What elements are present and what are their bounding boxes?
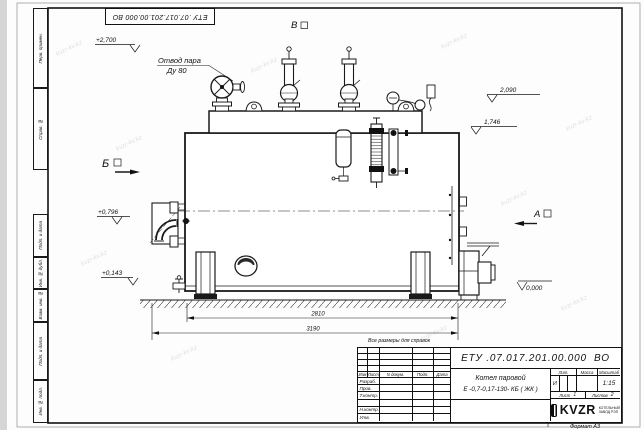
dimension-3190: 3190 — [152, 303, 458, 340]
title-block: Изм Лист N докум. Подп. Дата Разраб. Про… — [357, 347, 622, 423]
svg-text:+0,143: +0,143 — [102, 270, 122, 277]
sheet-cell: Лист1 — [551, 392, 586, 398]
svg-text:В: В — [291, 20, 298, 31]
support-leg-right — [409, 252, 432, 299]
col-list: Лист — [368, 372, 380, 377]
dim-inner-text: 2810 — [310, 312, 325, 318]
margin-box-podp-data-2: Подп. и дата — [33, 322, 48, 380]
margin-box-inv-dubl: Инв. № дубл. — [33, 257, 48, 289]
doc-number: ЕТУ .07.017.201.00.000 ВО — [451, 348, 620, 369]
svg-text:А: А — [533, 209, 540, 220]
kvzr-logo-text: KVZR — [560, 403, 596, 417]
drain-valve — [173, 276, 185, 293]
role-tkontr: Т.контр. — [358, 392, 380, 398]
elevation-mark-top-left: +2,700 — [95, 37, 140, 52]
role-utv: Утв. — [358, 414, 380, 421]
ground-hatch — [140, 300, 506, 308]
svg-text:+0,796: +0,796 — [98, 209, 118, 216]
reference-note: Все размеры для справок — [368, 338, 431, 344]
scale-header: Масштаб — [598, 369, 620, 375]
corner-doc-number: ЕТУ .07.017.201.00.000 ВО — [112, 13, 207, 20]
margin-box-inv-podl: Инв. № подл. — [33, 380, 48, 423]
steam-outlet-size-label: Ду 80 — [166, 66, 187, 75]
product-name-line1: Котел паровой — [475, 373, 525, 384]
sheets-cell: Листов2 — [586, 392, 621, 398]
manhole — [235, 256, 257, 276]
margin-box-perv-primen: Перв. примен. — [33, 8, 48, 88]
view-label-a: А — [514, 209, 551, 226]
steam-outlet-label: Отвод пара — [158, 56, 201, 65]
col-podp: Подп. — [413, 372, 435, 377]
elevation-mark-right-lower: 1,746 — [471, 119, 517, 134]
product-name: Котел паровой Е -0,7-0,17-130- КБ ( ЖК ) — [451, 369, 551, 400]
dim-overall-text: 3190 — [306, 327, 320, 333]
title-block-right-part: Лит. Масса Масштаб И 1:15 Лист1 Листов2 … — [551, 369, 620, 421]
elevation-mark-left-lower: +0,143 — [101, 270, 138, 285]
col-izm: Изм — [358, 372, 368, 377]
left-margin-column: Перв. примен. Справ. № Подп. и дата Инв.… — [33, 8, 48, 423]
scale-value: 1:15 — [598, 376, 620, 391]
role-prov: Пров. — [358, 385, 380, 391]
thermometer-plate — [427, 85, 435, 111]
support-leg-left — [194, 252, 217, 299]
svg-text:+2,700: +2,700 — [96, 37, 116, 44]
svg-text:1,746: 1,746 — [484, 119, 501, 126]
view-label-b: Б — [102, 158, 140, 175]
margin-box-sprav-n: Справ. № — [33, 88, 48, 170]
svg-text:2,090: 2,090 — [499, 87, 517, 94]
elevation-mark-left-upper: +0,796 — [97, 209, 130, 224]
svg-text:Б: Б — [102, 158, 109, 170]
role-razrab: Разраб. — [358, 378, 380, 384]
title-block-empty-cell — [451, 400, 551, 421]
kvzr-logo-icon — [551, 404, 557, 417]
lit-value: И — [551, 376, 560, 391]
kvzr-logo-subtext2: ЗАВОД РЭП — [599, 410, 620, 414]
role-blank — [358, 400, 380, 406]
burner-unit — [459, 243, 499, 300]
col-data: Дата — [434, 372, 450, 377]
mass-header: Масса — [577, 369, 598, 375]
margin-box-podp-data-1: Подп. и дата — [33, 214, 48, 257]
elevation-mark-right-upper: 2,090 — [487, 87, 540, 102]
lit-header: Лит. — [551, 369, 577, 375]
corner-doc-number-stamp: ЕТУ .07.017.201.00.000 ВО — [105, 8, 215, 25]
elevation-mark-ground: 0,000 — [517, 281, 552, 292]
steam-outlet-valve — [211, 76, 245, 111]
mass-value — [577, 376, 598, 391]
title-block-change-table: Изм Лист N докум. Подп. Дата Разраб. Про… — [358, 348, 451, 422]
view-label-v: В — [291, 20, 308, 31]
product-name-line2: Е -0,7-0,17-130- КБ ( ЖК ) — [463, 385, 537, 395]
dimension-2810: 2810 — [187, 303, 458, 340]
format-label: Формат А3 — [548, 423, 622, 430]
svg-text:0,000: 0,000 — [526, 285, 543, 292]
company-logo: KVZR КОТЕЛЬНЫЙ ЗАВОД РЭП — [551, 399, 620, 421]
margin-box-vzam-inv: Взам. инв. № — [33, 289, 48, 322]
col-dokum: N докум. — [380, 372, 413, 377]
role-nkontr: Н.контр. — [358, 407, 380, 413]
